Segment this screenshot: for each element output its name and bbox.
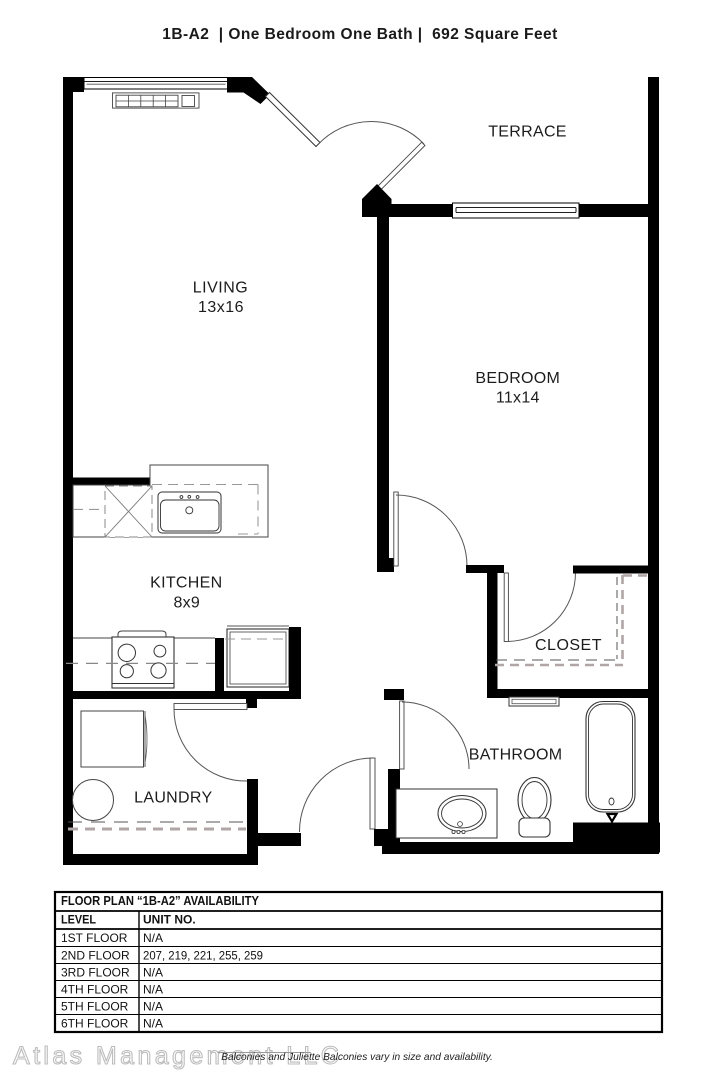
svg-text:11x14: 11x14 [496, 390, 540, 407]
svg-text:1B-A2 | One Bedroom One Bath: 1B-A2 | One Bedroom One Bath | 692 Squar… [162, 26, 557, 43]
svg-text:Balconies and Juliette Balconi: Balconies and Juliette Balconies vary in… [221, 1052, 493, 1063]
svg-text:N/A: N/A [143, 1000, 163, 1014]
svg-text:TERRACE: TERRACE [488, 124, 567, 141]
svg-text:BEDROOM: BEDROOM [475, 370, 560, 387]
svg-text:2ND FLOOR: 2ND FLOOR [61, 949, 130, 963]
svg-text:8x9: 8x9 [173, 594, 200, 611]
svg-text:LIVING: LIVING [193, 279, 248, 296]
svg-text:4TH FLOOR: 4TH FLOOR [61, 983, 129, 997]
svg-text:FLOOR PLAN “1B-A2” AVAILABILIT: FLOOR PLAN “1B-A2” AVAILABILITY [61, 893, 259, 908]
svg-text:BATHROOM: BATHROOM [469, 746, 563, 763]
svg-text:KITCHEN: KITCHEN [150, 575, 222, 592]
svg-text:LAUNDRY: LAUNDRY [134, 789, 212, 806]
svg-text:207, 219, 221, 255, 259: 207, 219, 221, 255, 259 [143, 949, 263, 963]
svg-text:N/A: N/A [143, 1017, 163, 1031]
svg-text:CLOSET: CLOSET [535, 637, 602, 654]
svg-text:N/A: N/A [143, 983, 163, 997]
svg-text:1ST FLOOR: 1ST FLOOR [61, 931, 128, 945]
svg-text:13x16: 13x16 [198, 299, 244, 316]
svg-text:3RD FLOOR: 3RD FLOOR [61, 966, 130, 980]
svg-text:6TH FLOOR: 6TH FLOOR [61, 1017, 129, 1031]
svg-text:LEVEL: LEVEL [61, 913, 96, 927]
svg-text:N/A: N/A [143, 931, 163, 945]
svg-text:N/A: N/A [143, 966, 163, 980]
svg-text:5TH FLOOR: 5TH FLOOR [61, 1000, 129, 1014]
svg-text:UNIT NO.: UNIT NO. [143, 913, 196, 927]
